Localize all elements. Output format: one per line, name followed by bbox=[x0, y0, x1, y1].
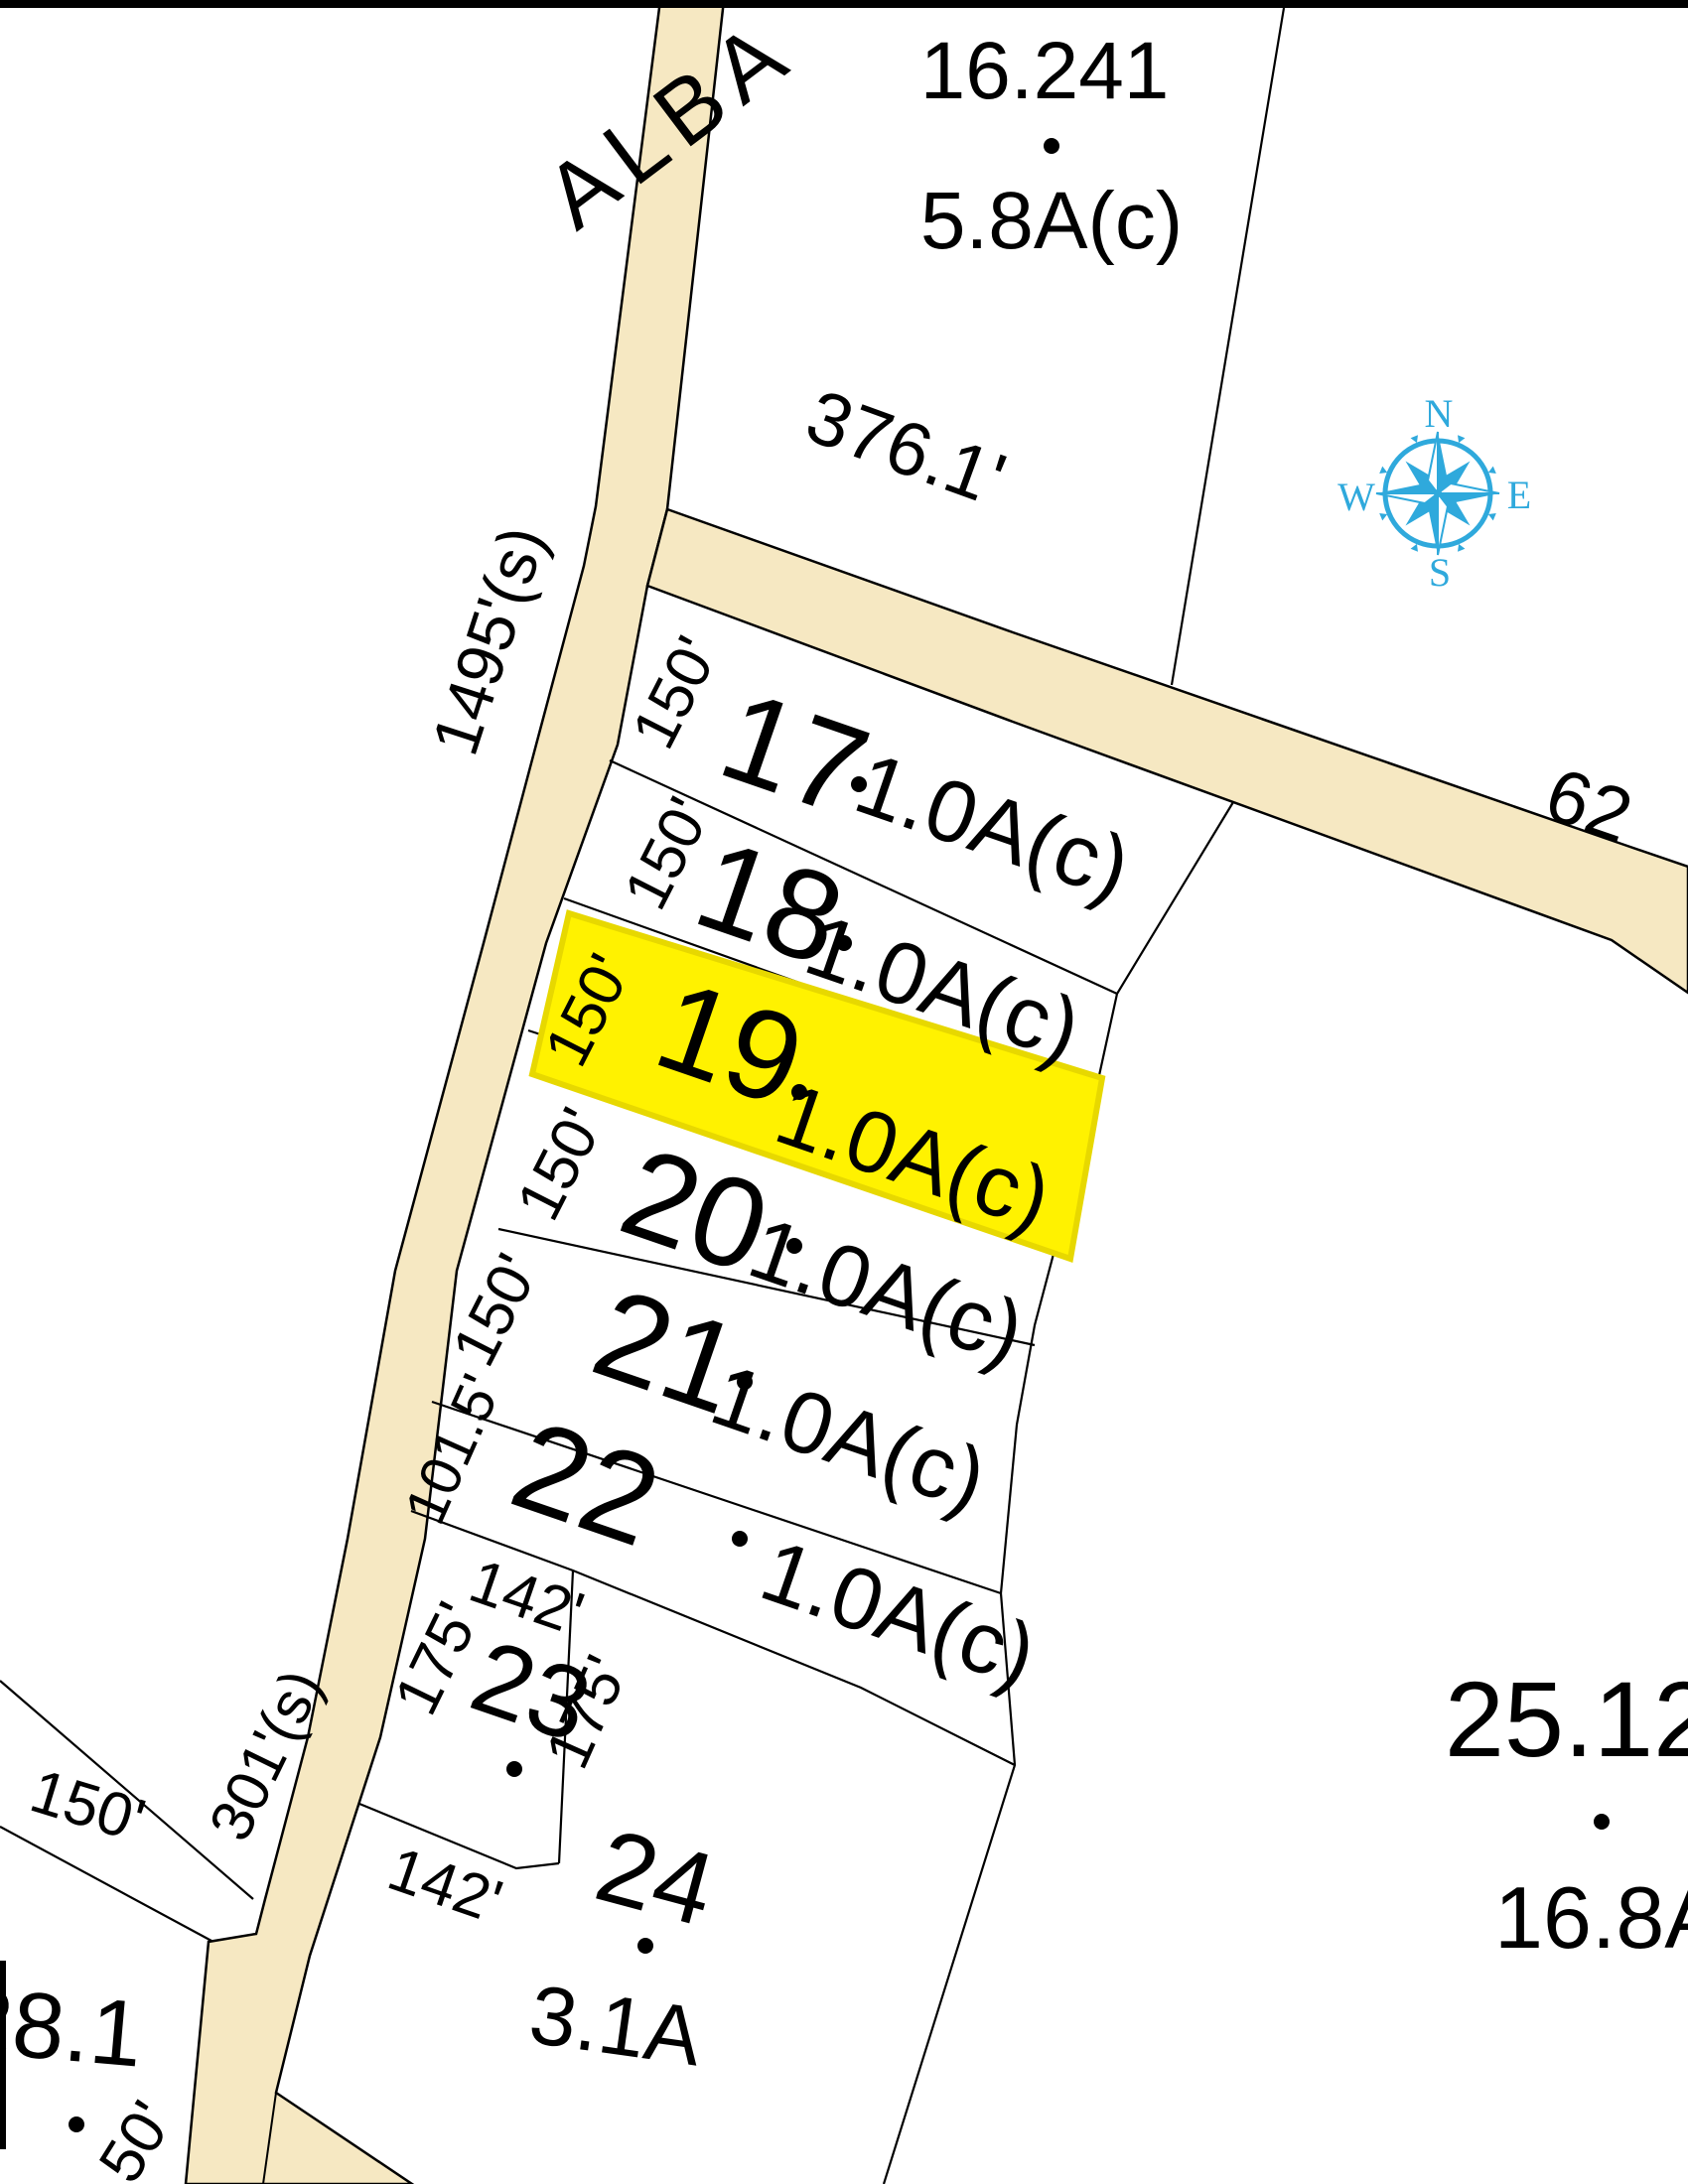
parcel-24-area: 3.1A bbox=[525, 1972, 707, 2078]
boundary-16241-east bbox=[1172, 8, 1284, 685]
centroid-dot-25-12 bbox=[1594, 1814, 1610, 1830]
compass-letter-north: N bbox=[1425, 394, 1454, 434]
centroid-dot-22 bbox=[732, 1531, 748, 1547]
parcel-16241-area: 5.8A(c) bbox=[920, 181, 1183, 262]
centroid-dot-23 bbox=[506, 1761, 522, 1777]
centroid-dot-24 bbox=[637, 1938, 653, 1954]
compass-hub bbox=[1434, 489, 1442, 497]
compass-rose bbox=[1373, 429, 1502, 558]
map-border-top bbox=[0, 0, 1688, 8]
parcel-25-12-number: 25.12 bbox=[1445, 1666, 1688, 1773]
parcel-map: ALBA1495'(s)16.2415.8A(c)376.1'62150'171… bbox=[0, 0, 1688, 2184]
compass-letter-west: W bbox=[1337, 478, 1375, 517]
centroid-dot-16241 bbox=[1044, 138, 1059, 154]
compass-letter-south: S bbox=[1429, 553, 1451, 593]
compass-letter-east: E bbox=[1507, 476, 1531, 515]
centroid-dot-28-1 bbox=[69, 2116, 84, 2132]
parcel-25-12-area: 16.8A bbox=[1494, 1874, 1688, 1962]
parcel-16241-number: 16.241 bbox=[920, 31, 1170, 112]
parcel-28-1-number: 28.1 bbox=[0, 1973, 146, 2082]
